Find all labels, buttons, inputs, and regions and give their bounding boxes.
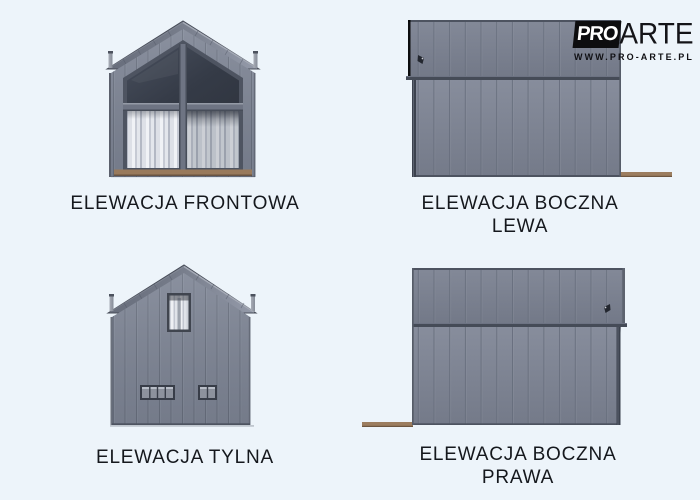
side-left-wall-siding-seams	[412, 80, 621, 177]
side-right-roof-edge	[623, 268, 626, 323]
side-left-elevation-label-line1: ELEWACJA BOCZNA	[365, 192, 675, 215]
front-window-mullion-shade-left	[179, 44, 181, 170]
rear-elevation-label-text: ELEWACJA TYLNA	[35, 446, 335, 469]
front-elevation-drawing	[90, 12, 280, 187]
front-left-roof-vent	[108, 51, 113, 68]
side-left-wall-bottom-line	[412, 175, 621, 177]
rear-ground-shadow	[110, 425, 254, 427]
logo-website-url: WWW.PRO-ARTE.PL	[574, 52, 694, 62]
side-left-roof-edge	[408, 20, 411, 76]
side-right-wall-siding-seams	[412, 327, 621, 425]
rear-right-roof-vent	[251, 294, 256, 311]
rear-elevation-label: ELEWACJA TYLNA	[35, 446, 335, 469]
front-downspout	[109, 73, 111, 177]
rear-strip-window-left	[140, 385, 175, 400]
rear-left-roof-vent	[109, 294, 114, 311]
elevation-sheet: ELEWACJA FRONTOWA ELEWACJA BOCZNA LEWA E…	[0, 0, 700, 500]
front-right-roof-vent	[253, 51, 258, 68]
side-left-downspout-highlight	[413, 80, 414, 177]
side-right-elevation-label-line1: ELEWACJA BOCZNA	[368, 443, 668, 466]
pro-arte-logo: PRO ARTE WWW.PRO-ARTE.PL	[574, 19, 694, 62]
rear-left-downspout	[111, 317, 113, 425]
side-right-downspout-highlight	[618, 327, 619, 425]
rear-strip-window-right	[198, 385, 217, 400]
rear-gable-window	[167, 293, 191, 332]
side-right-wall-bottom-line	[412, 423, 621, 425]
side-left-elevation-label: ELEWACJA BOCZNA LEWA	[365, 192, 675, 238]
logo-pro-mark: PRO	[573, 21, 622, 48]
rear-elevation-drawing	[90, 258, 280, 438]
rear-right-corner-trim	[249, 317, 251, 425]
front-base-strip-shadow	[114, 175, 252, 177]
side-left-gutter-highlight	[406, 76, 621, 77]
side-left-ground-strip-shadow	[621, 176, 672, 177]
side-right-left-corner-trim	[412, 268, 414, 425]
side-right-gutter-highlight	[412, 323, 627, 324]
side-right-elevation-drawing	[355, 260, 640, 432]
rear-wall-bottom-line	[112, 423, 250, 425]
side-right-roof-seams	[412, 268, 625, 323]
front-elevation-label: ELEWACJA FRONTOWA	[35, 192, 335, 215]
side-right-roof-ridge-line	[412, 268, 625, 270]
side-left-elevation-label-line2: LEWA	[365, 215, 675, 238]
side-right-elevation-label-line2: PRAWA	[368, 466, 668, 489]
front-window-mullion-shade-right	[186, 44, 188, 170]
front-ground-line	[111, 176, 255, 177]
pro-arte-wordmark: PRO ARTE	[574, 19, 694, 49]
side-right-elevation-label: ELEWACJA BOCZNA PRAWA	[368, 443, 668, 489]
front-right-corner-trim	[254, 73, 256, 177]
side-right-ground-strip-shadow	[362, 426, 413, 427]
front-elevation-label-text: ELEWACJA FRONTOWA	[35, 192, 335, 215]
logo-arte-mark: ARTE	[619, 17, 693, 51]
